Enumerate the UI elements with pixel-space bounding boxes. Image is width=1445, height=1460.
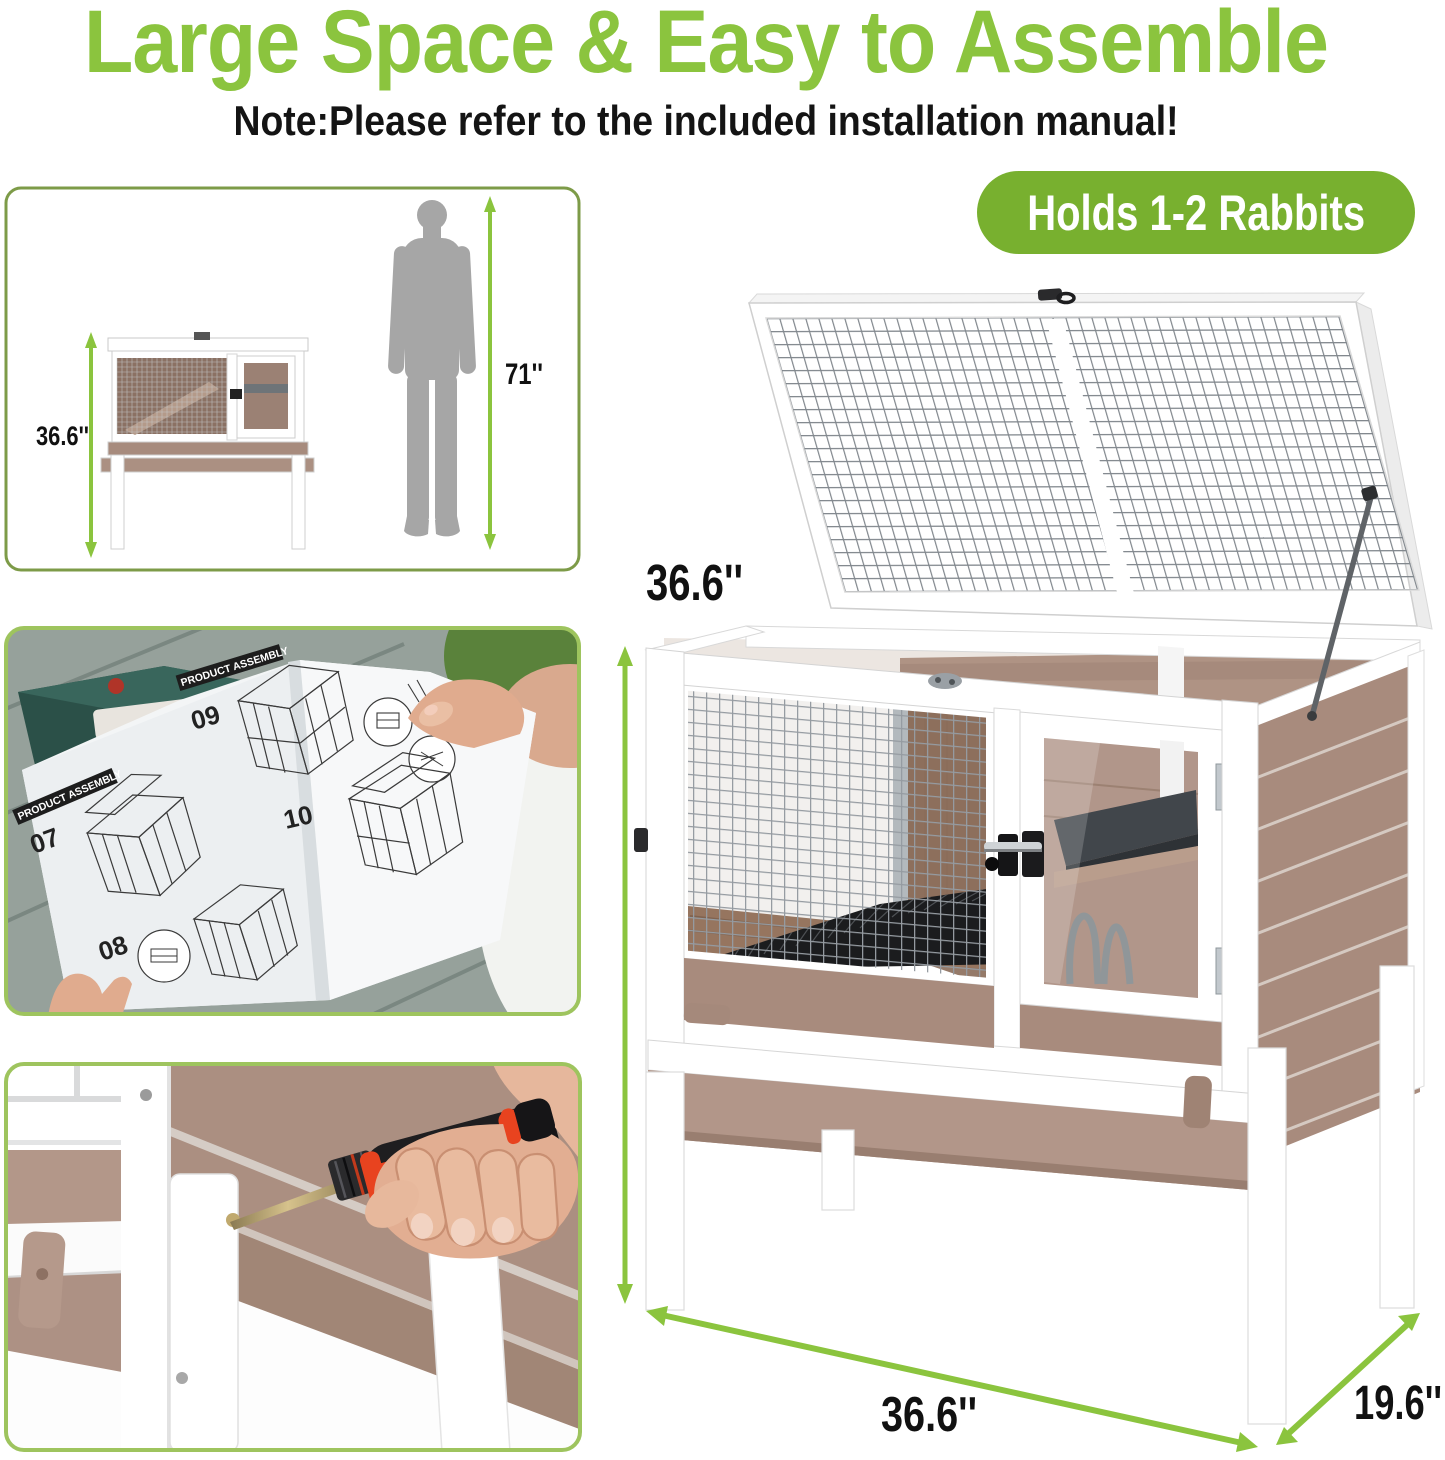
svg-text:36.6'': 36.6'' — [646, 554, 743, 611]
svg-text:71'': 71'' — [505, 358, 543, 391]
svg-text:19.6'': 19.6'' — [1354, 1377, 1442, 1430]
svg-text:36.6'': 36.6'' — [881, 1388, 977, 1442]
svg-text:36.6'': 36.6'' — [36, 421, 89, 451]
